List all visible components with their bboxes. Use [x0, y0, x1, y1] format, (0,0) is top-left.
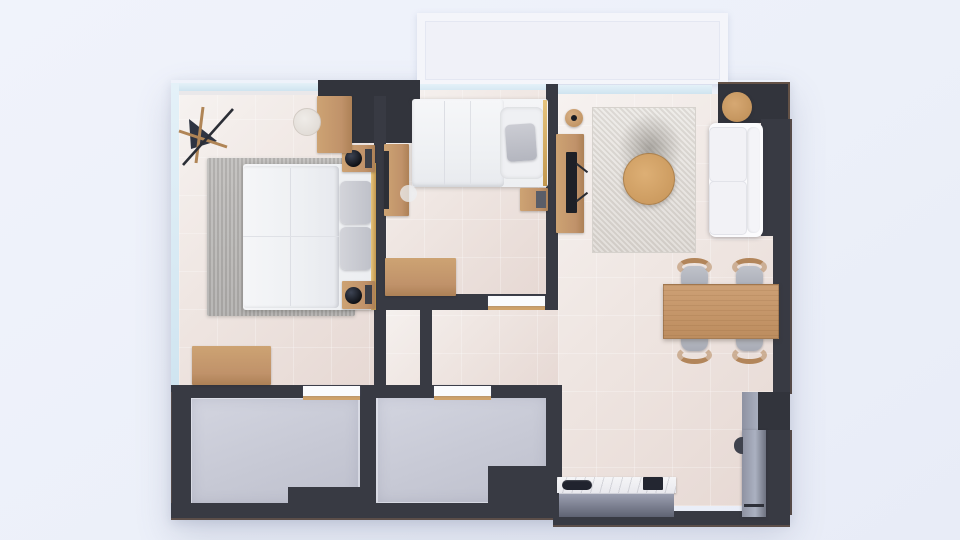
wall-bathroom-divider — [360, 392, 376, 508]
wall-right-bottom — [766, 430, 792, 515]
bedside-shelf-slot — [365, 149, 372, 168]
bed2-duvet-seam — [444, 101, 445, 185]
bedroom1-desk-cabinet — [317, 96, 352, 153]
refrigerator-handle — [734, 437, 743, 454]
butterfly-chair — [176, 102, 242, 170]
floor-plan-scene — [0, 0, 960, 540]
dining-chair-back — [732, 346, 767, 364]
wall-bath2-notch — [488, 466, 550, 505]
table-lamp — [345, 287, 362, 304]
bed2-headboard — [543, 100, 547, 186]
refrigerator-base-line — [744, 504, 764, 507]
wall-bath1-notch — [288, 487, 362, 505]
wall-sofa-niche-back — [761, 119, 792, 236]
sofa — [709, 123, 763, 237]
dining-chair-back — [677, 258, 712, 276]
kitchen-cabinet-front — [559, 493, 674, 517]
bedroom2-wardrobe-groove — [384, 151, 389, 209]
side-table — [722, 92, 752, 122]
bed2-pillow-gray — [505, 123, 538, 162]
kitchen-sink — [562, 480, 592, 490]
dining-chair-back — [677, 346, 712, 364]
dining-table — [663, 284, 779, 339]
bed2-duvet-seam — [470, 101, 471, 185]
wall-hall-divider — [420, 308, 432, 392]
door-hall-bathroom2 — [434, 386, 491, 396]
cooktop — [643, 477, 663, 490]
wall-bathrooms-bottom — [171, 503, 563, 520]
wall-bottom-right-corner — [758, 392, 790, 432]
bedroom2-stool — [400, 185, 417, 202]
round-vase-opening — [571, 115, 577, 121]
window-band-living-top — [558, 85, 712, 94]
tv — [566, 152, 577, 213]
bedroom1-dresser — [192, 346, 271, 385]
door-bedroom2-hall — [488, 296, 545, 306]
bed2-duvet — [412, 99, 504, 187]
bed1-duvet-seam — [290, 168, 291, 306]
bedside-shelf-slot — [365, 285, 372, 304]
bed1-duvet-seam — [243, 236, 339, 237]
bed1-duvet — [243, 166, 339, 308]
wall-bath-left-outer — [171, 392, 191, 513]
balcony-railing — [425, 21, 720, 80]
bed1-pillow — [340, 181, 372, 224]
coffee-table — [623, 153, 675, 205]
bedroom2-desk — [385, 258, 456, 296]
door-bedroom1-bathroom1 — [303, 386, 360, 396]
round-stool — [293, 108, 321, 136]
sofa-cushion — [709, 181, 747, 235]
bedroom2-nightstand-inset — [536, 191, 546, 208]
window-band-bedroom1-top — [179, 83, 320, 91]
sofa-cushion — [709, 127, 747, 182]
bed1-pillow — [340, 227, 372, 270]
refrigerator-top — [742, 392, 758, 430]
dining-chair-back — [732, 258, 767, 276]
balcony — [417, 13, 728, 84]
sofa-back — [747, 127, 760, 233]
